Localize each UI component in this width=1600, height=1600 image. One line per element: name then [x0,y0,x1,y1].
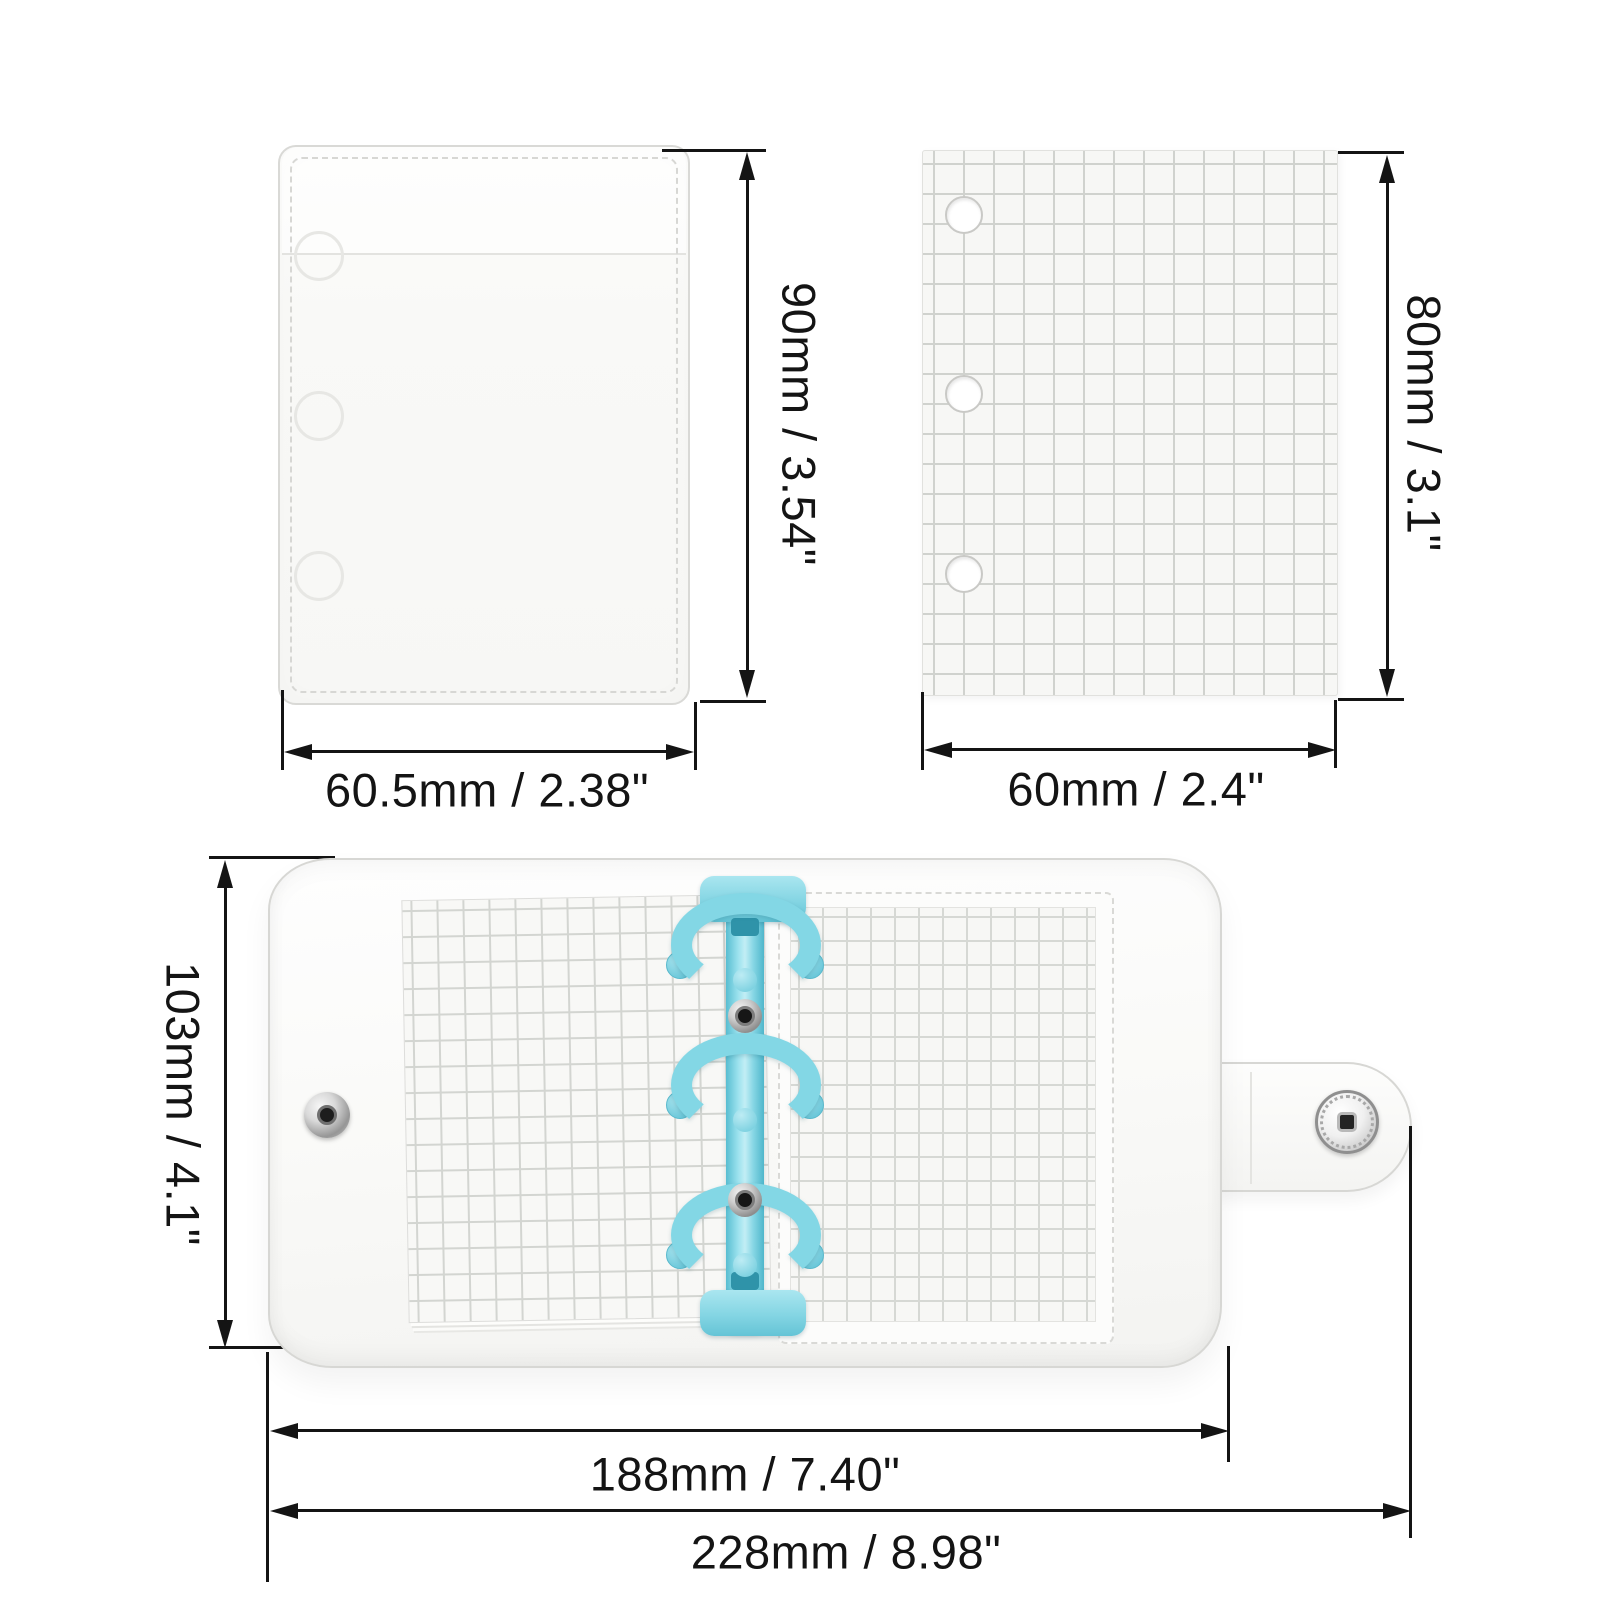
dim-label-binder-height: 103mm / 4.1" [156,962,211,1246]
spine-rivet-2 [728,1183,762,1217]
pocket-hole-3 [294,551,344,601]
grid-refill-paper [922,150,1338,696]
dim-label-paper-height: 80mm / 3.1" [1397,294,1452,551]
arrowhead-right [1383,1503,1411,1519]
arrowhead-left [284,744,312,760]
dim-line-paper-height [1386,168,1389,684]
arrowhead-left [924,742,952,758]
extension-line [1338,151,1404,154]
clear-pocket [278,145,690,705]
dim-line-binder-outer-width [282,1509,1400,1512]
dim-label-binder-outer-width: 228mm / 8.98" [691,1525,1002,1580]
extension-line [1227,1346,1230,1462]
dim-label-paper-width: 60mm / 2.4" [1007,762,1264,817]
tab-fold-line [1250,1072,1252,1184]
arrowhead-right [666,744,694,760]
extension-line [1338,698,1404,701]
arrowhead-up [739,152,755,180]
paper-hole-1 [945,196,983,234]
spine-rivet-1 [728,999,762,1033]
pocket-hole-1 [294,231,344,281]
spine-bump-2 [733,1108,757,1132]
extension-line [1409,1126,1412,1538]
pocket-stitch-border [290,157,678,693]
tab-snap-button [1315,1090,1379,1154]
arrowhead-down [1379,669,1395,697]
right-page-pocket [778,892,1114,1344]
paper-hole-3 [945,555,983,593]
dim-line-pocket-height [746,166,749,686]
pocket-hole-2 [294,391,344,441]
spine-bump-3 [733,1253,757,1277]
dim-label-pocket-height: 90mm / 3.54" [772,282,827,566]
rivet-hole [735,1006,755,1026]
snap-center-hole [1337,1112,1357,1132]
extension-line [700,700,766,703]
snap-center-hole [317,1105,337,1125]
paper-hole-2 [945,375,983,413]
arrowhead-up [1379,155,1395,183]
product-dimension-diagram: 90mm / 3.54" 60.5mm / 2.38" 80mm / 3.1" … [0,0,1600,1600]
dim-line-binder-inner-width [282,1429,1212,1432]
dim-line-paper-width [932,748,1328,751]
dim-line-binder-height [224,872,227,1324]
rivet-hole [735,1190,755,1210]
arrowhead-left [270,1503,298,1519]
arrowhead-down [739,670,755,698]
cover-snap-button [304,1092,350,1138]
dim-label-binder-inner-width: 188mm / 7.40" [590,1447,901,1502]
binder-tab [1214,1062,1412,1192]
arrowhead-right [1201,1423,1229,1439]
arrowhead-left [270,1423,298,1439]
arrowhead-down [217,1320,233,1348]
extension-line [266,1352,269,1582]
dim-line-pocket-width [292,750,682,753]
arrowhead-up [217,860,233,888]
spine-bump-1 [733,968,757,992]
right-page-paper [790,907,1096,1322]
spine-cap-bottom [700,1290,806,1336]
dim-label-pocket-width: 60.5mm / 2.38" [325,763,649,818]
extension-line [694,702,697,770]
arrowhead-right [1308,742,1336,758]
extension-line [921,692,924,770]
